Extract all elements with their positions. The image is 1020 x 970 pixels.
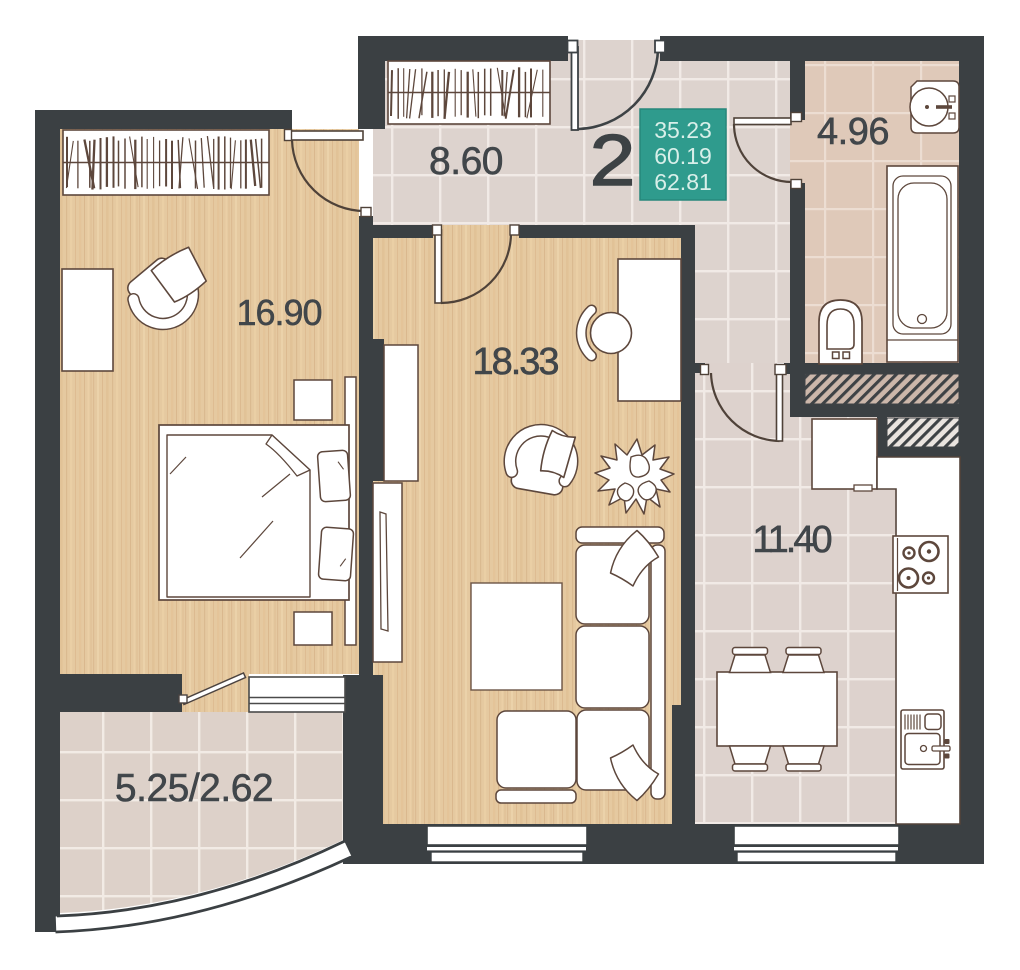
svg-text:60.19: 60.19 — [654, 143, 712, 169]
svg-text:62.81: 62.81 — [654, 169, 712, 195]
svg-text:2: 2 — [590, 121, 636, 201]
svg-text:5.25/2.62: 5.25/2.62 — [115, 767, 273, 810]
svg-text:18.33: 18.33 — [472, 341, 558, 383]
svg-text:16.90: 16.90 — [236, 292, 321, 333]
svg-text:4.96: 4.96 — [817, 111, 889, 153]
svg-text:35.23: 35.23 — [654, 117, 712, 143]
svg-text:11.40: 11.40 — [752, 519, 831, 561]
svg-text:8.60: 8.60 — [429, 140, 503, 183]
